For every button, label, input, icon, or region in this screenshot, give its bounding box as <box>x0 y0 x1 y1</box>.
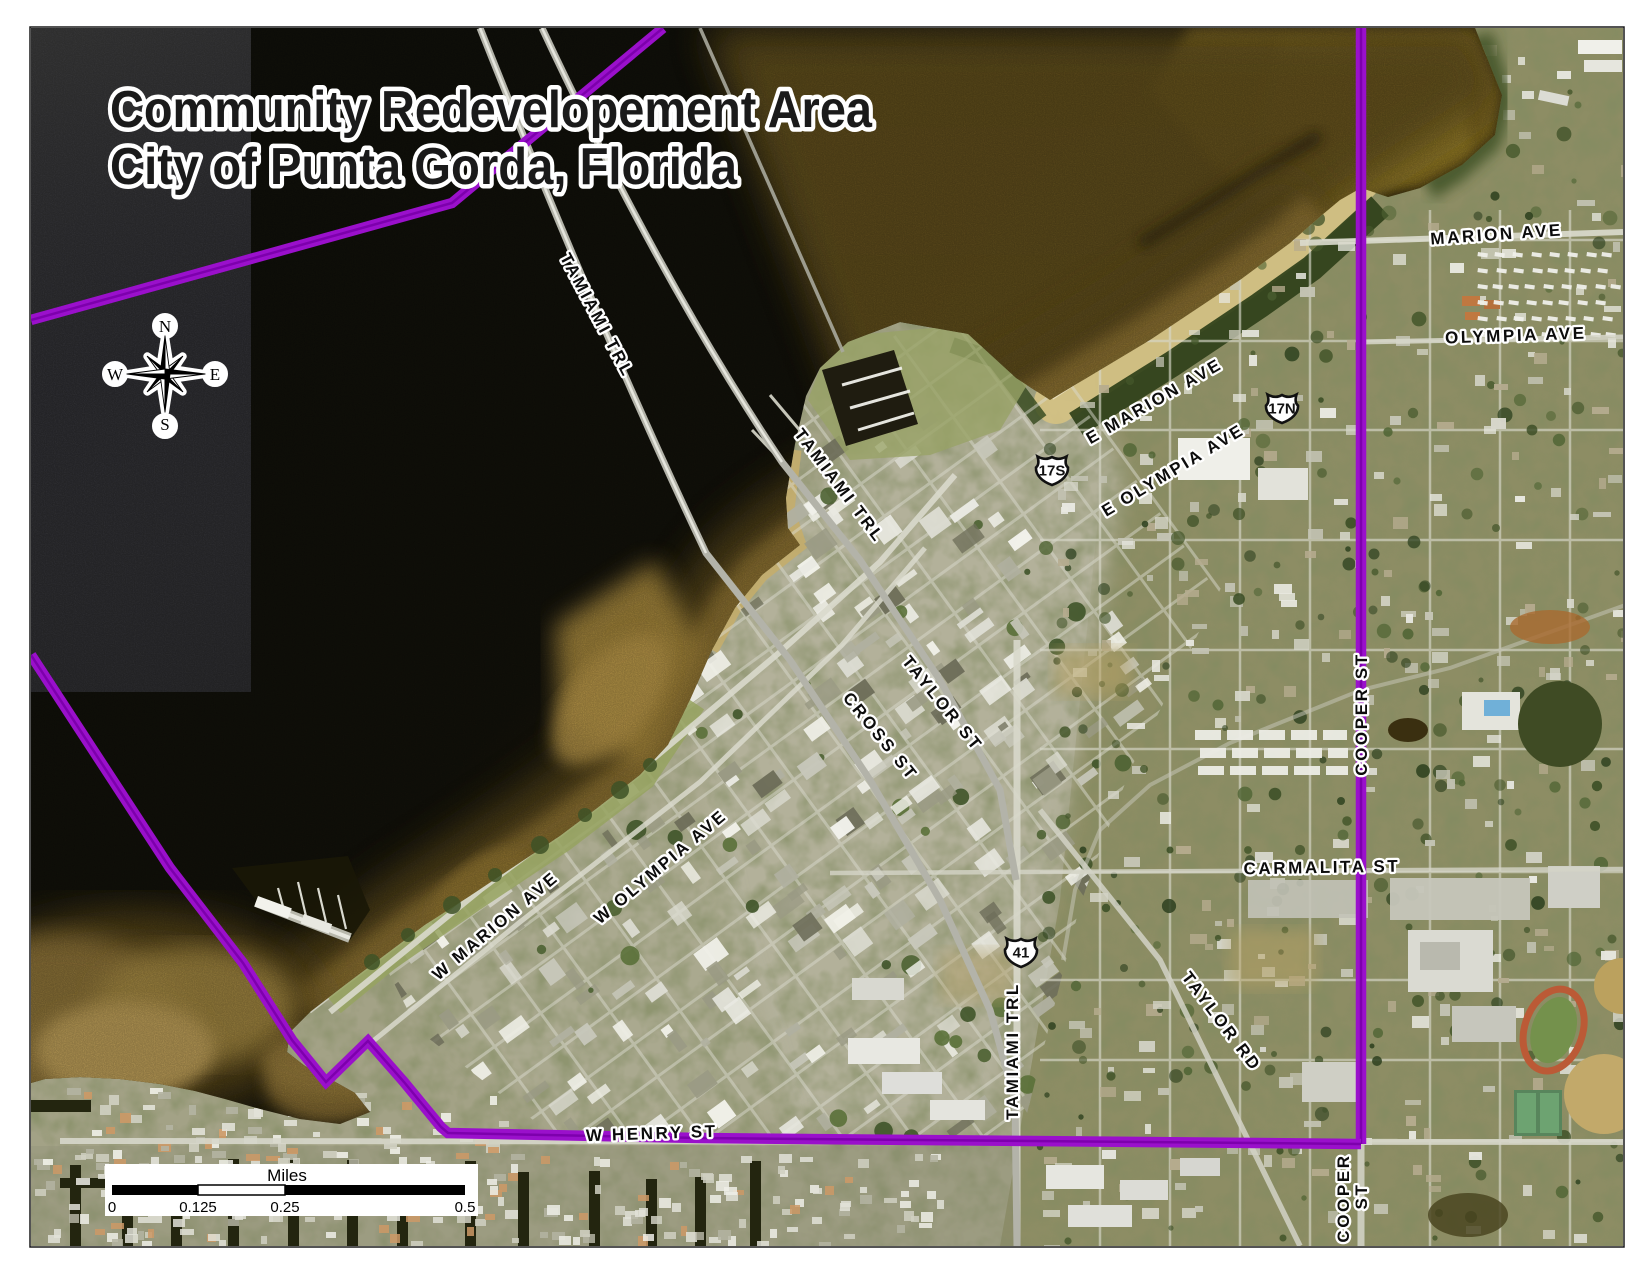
svg-text:S: S <box>160 415 169 434</box>
svg-text:N: N <box>159 317 171 336</box>
svg-text:17S: 17S <box>1039 463 1066 480</box>
svg-text:TAMIAMI TRL: TAMIAMI TRL <box>1003 982 1022 1120</box>
svg-text:COOPER ST: COOPER ST <box>1352 652 1371 776</box>
svg-text:ST: ST <box>1352 1183 1371 1210</box>
svg-text:0.125: 0.125 <box>179 1199 217 1216</box>
svg-text:17N: 17N <box>1268 401 1296 418</box>
svg-text:COOPER: COOPER <box>1334 1153 1353 1242</box>
svg-text:Community Redevelopement Area: Community Redevelopement Area <box>110 81 873 139</box>
svg-text:0.25: 0.25 <box>270 1199 299 1216</box>
svg-text:0: 0 <box>108 1199 116 1216</box>
svg-text:0.5: 0.5 <box>455 1199 476 1216</box>
svg-text:CARMALITA ST: CARMALITA ST <box>1243 857 1400 879</box>
svg-text:E: E <box>210 365 220 384</box>
svg-text:41: 41 <box>1013 945 1030 962</box>
svg-text:City of Punta Gorda, Florida: City of Punta Gorda, Florida <box>110 138 738 196</box>
svg-text:Miles: Miles <box>267 1166 307 1185</box>
svg-text:W: W <box>107 365 124 384</box>
